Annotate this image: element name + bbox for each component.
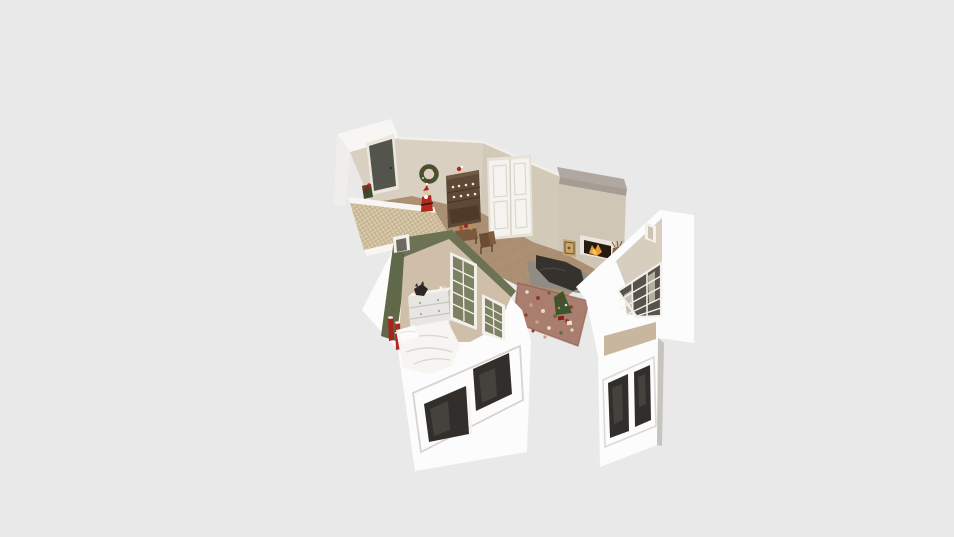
den-door xyxy=(648,226,653,240)
closet-double-doors xyxy=(487,155,533,240)
floorplan-3d-viewport[interactable] xyxy=(0,0,954,537)
floorplan-render xyxy=(0,0,954,537)
framed-picture xyxy=(563,239,576,257)
santa-hat-decor xyxy=(457,167,461,171)
santa-face xyxy=(423,190,428,195)
china-hutch xyxy=(446,166,481,228)
bed xyxy=(396,320,460,374)
door-knob xyxy=(390,167,392,169)
dresser-item xyxy=(439,286,442,289)
bedroom-door xyxy=(396,238,407,252)
gift-box xyxy=(567,321,573,326)
santa-beard xyxy=(424,195,428,199)
dresser-item xyxy=(444,286,446,288)
gift-box xyxy=(558,316,564,321)
